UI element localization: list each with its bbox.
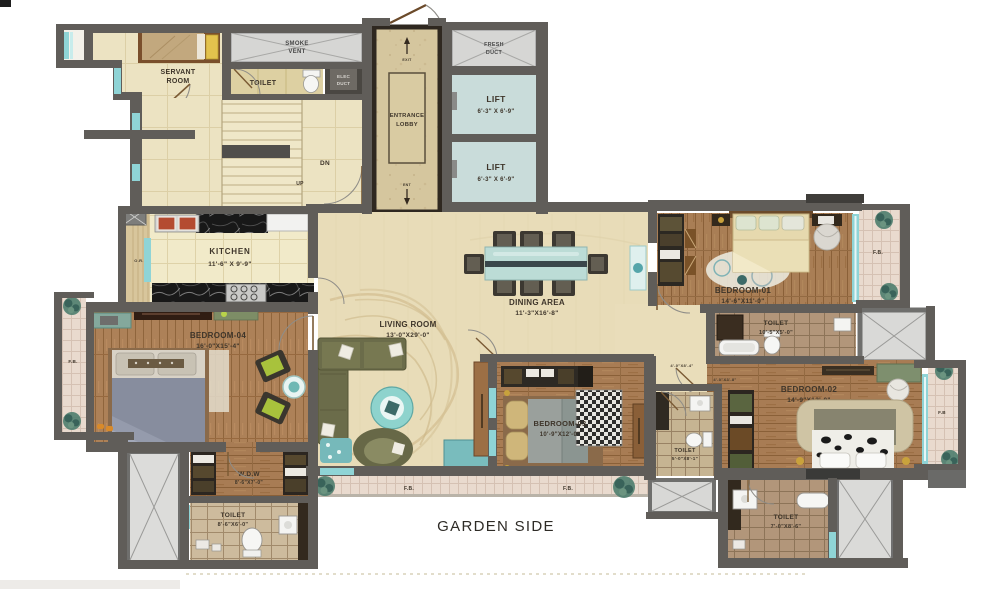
svg-text:ROOM: ROOM [167, 78, 190, 85]
svg-text:6'-3" X 6'-9": 6'-3" X 6'-9" [477, 109, 514, 115]
svg-text:DUCT: DUCT [486, 50, 503, 56]
svg-text:10'-5"X5'-0": 10'-5"X5'-0" [759, 330, 793, 336]
svg-text:BEDROOM-03: BEDROOM-03 [533, 419, 586, 428]
svg-text:BEDROOM-04: BEDROOM-04 [190, 331, 247, 340]
svg-text:F.B.: F.B. [404, 486, 414, 492]
svg-text:11'-3"X16'-8": 11'-3"X16'-8" [515, 310, 558, 317]
svg-text:14'-6"X11'-0": 14'-6"X11'-0" [721, 298, 764, 305]
svg-text:11'-6" X 9'-9": 11'-6" X 9'-9" [208, 261, 251, 268]
svg-text:EXIT: EXIT [402, 58, 412, 62]
svg-text:4'-0"X3'-8": 4'-0"X3'-8" [713, 377, 736, 382]
svg-text:SERVANT: SERVANT [161, 69, 196, 76]
svg-text:7'-0"X8'-6": 7'-0"X8'-6" [771, 524, 802, 530]
svg-text:DN: DN [320, 160, 330, 167]
svg-text:ELEC: ELEC [337, 74, 351, 79]
svg-text:LIFT: LIFT [486, 94, 506, 104]
svg-text:TOILET: TOILET [674, 448, 696, 454]
svg-text:6'-3" X 6'-9": 6'-3" X 6'-9" [477, 177, 514, 183]
svg-text:BEDROOM-02: BEDROOM-02 [781, 385, 838, 394]
svg-text:TOILET: TOILET [774, 514, 799, 521]
svg-text:4'-0"X8'-4": 4'-0"X8'-4" [670, 363, 693, 368]
svg-text:TOILET: TOILET [764, 320, 789, 327]
svg-text:BEDROOM-01: BEDROOM-01 [715, 286, 772, 295]
svg-text:TOILET: TOILET [250, 80, 277, 87]
svg-text:8'-6"X6'-0": 8'-6"X6'-0" [218, 522, 249, 528]
svg-text:FRESH: FRESH [484, 42, 504, 48]
svg-text:DUCT: DUCT [337, 81, 351, 86]
svg-text:F.B.: F.B. [873, 250, 883, 256]
svg-text:UP: UP [296, 181, 304, 187]
svg-text:SMOKE: SMOKE [285, 41, 309, 47]
svg-text:LIVING ROOM: LIVING ROOM [379, 320, 436, 329]
svg-text:F.B.: F.B. [563, 486, 573, 492]
svg-text:DINING AREA: DINING AREA [509, 298, 565, 307]
svg-text:LOBBY: LOBBY [396, 122, 418, 128]
svg-text:ENTRANCE: ENTRANCE [390, 113, 425, 119]
svg-text:LIFT: LIFT [486, 162, 506, 172]
svg-text:F.B.: F.B. [68, 359, 77, 364]
svg-text:10'-9"X12'-0": 10'-9"X12'-0" [540, 432, 580, 438]
svg-text:8'-6"X7'-0": 8'-6"X7'-0" [235, 480, 264, 486]
svg-text:O.R.: O.R. [134, 258, 143, 263]
svg-text:VENT: VENT [288, 49, 305, 55]
svg-text:16'-0"X15'-4": 16'-0"X15'-4" [196, 343, 240, 350]
svg-text:ENT: ENT [403, 183, 412, 187]
svg-text:TOILET: TOILET [221, 512, 246, 519]
svg-text:KITCHEN: KITCHEN [209, 247, 250, 256]
svg-text:5'-0"X8'-1": 5'-0"X8'-1" [672, 456, 698, 461]
svg-text:GARDEN SIDE: GARDEN SIDE [437, 518, 555, 535]
svg-text:F.B: F.B [938, 410, 946, 415]
